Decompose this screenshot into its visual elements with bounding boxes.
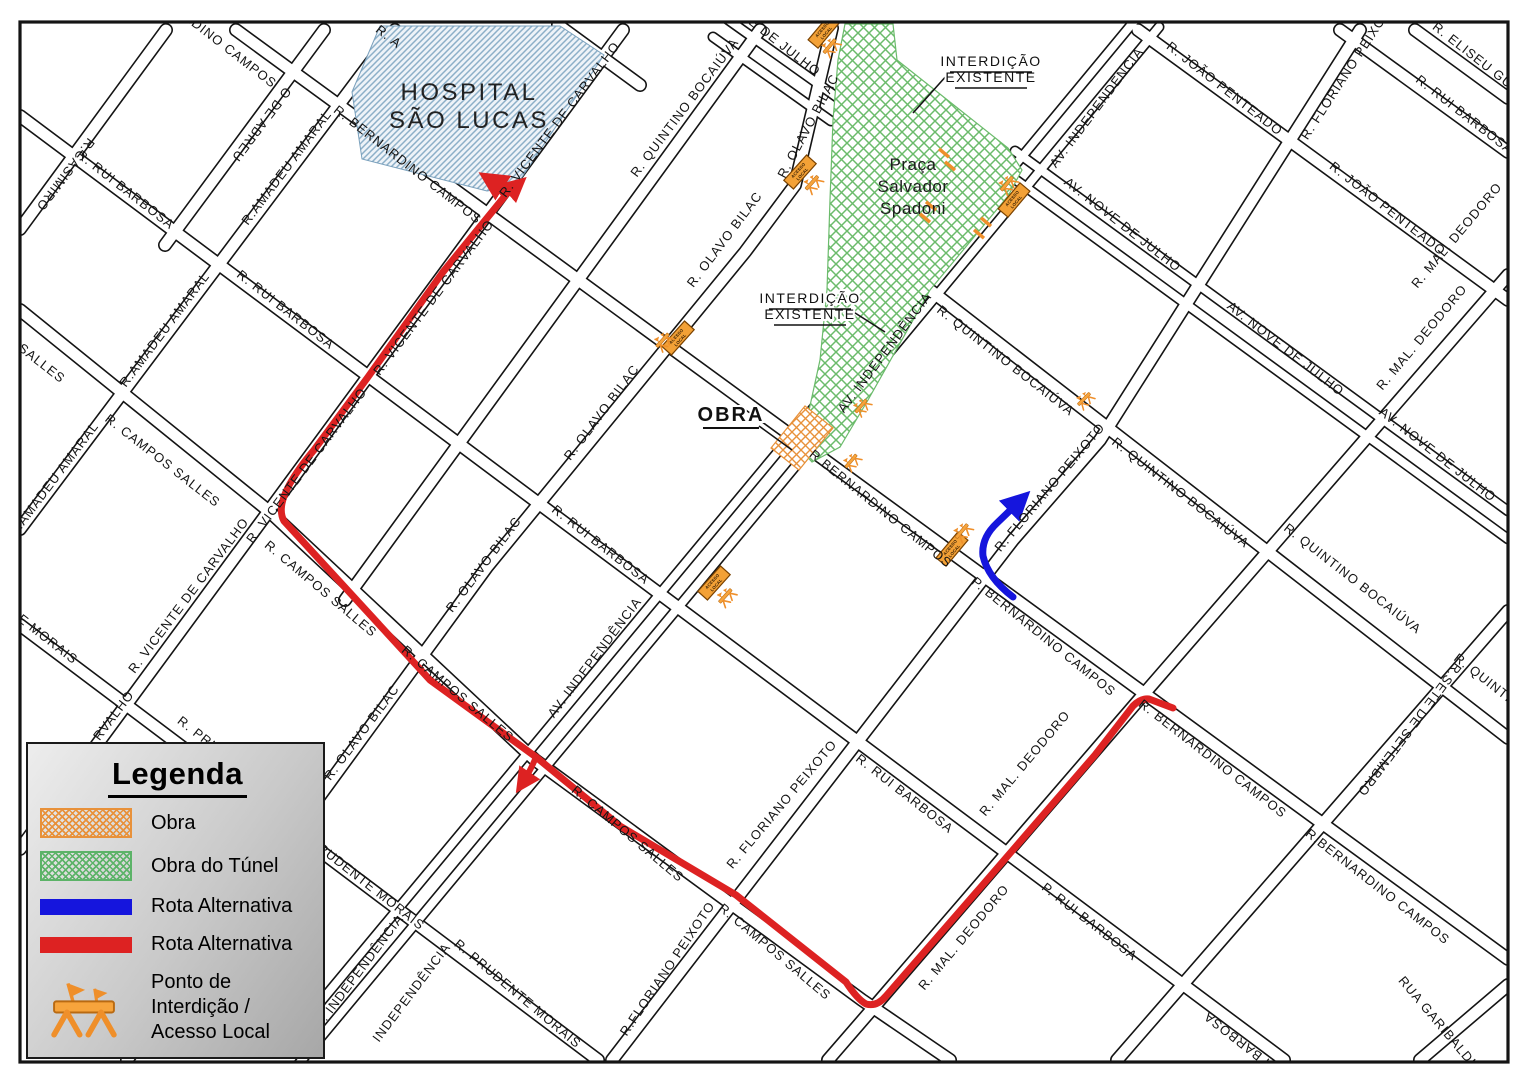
praca-name: Praça: [890, 155, 937, 174]
legend-title: Legenda: [108, 756, 247, 798]
legend-panel: Legenda Obra Obra do Túnel Rota Alternat…: [26, 742, 325, 1059]
legend-item-label: Rota Alternativa: [151, 932, 292, 957]
street-label: R. JOÃO PENTEADO: [1164, 38, 1286, 138]
legend-item-ponto-interdicao: Ponto de Interdição / Acesso Local: [40, 970, 309, 1045]
obra-callout: OBRA: [698, 404, 765, 426]
hospital-name: SÃO LUCAS: [389, 107, 549, 134]
red-route-swatch: [40, 937, 132, 953]
traffic-detour-map-page: ACESSO LOCAL R.CASIMIROO DE ABREUR.AMADE…: [0, 0, 1528, 1080]
legend-item-obra: Obra: [40, 808, 309, 838]
legend-item-label: Obra: [151, 811, 195, 836]
street-label: R. JOÃO PENTEADO: [1327, 158, 1449, 258]
street-label: R. RUI BARBOSA: [549, 502, 652, 587]
praca-name: Spadoni: [880, 199, 946, 218]
legend-item-label: Rota Alternativa: [151, 894, 292, 919]
street-label: R.BERNARDINO CAMPOS: [1303, 826, 1453, 948]
street-label: R. OLAVO BILAC: [443, 514, 525, 615]
street-label: R. CAMPOS SALLES: [569, 782, 687, 885]
praca-name: Salvador: [877, 177, 948, 196]
street-label: R.FLORIANO PEIXOTO: [617, 899, 718, 1039]
street-label: R. CAMPOS SALLES: [716, 900, 834, 1003]
street-label: R. VICENTE DE CARVALHO: [243, 385, 370, 546]
street-label: R. VICENTE DE CARVALHO: [125, 515, 252, 676]
street-label: P. BERNARDINO CAMPOS: [969, 574, 1119, 699]
barrier-legend-icon: [40, 976, 132, 1040]
street-label: R. BERNARDINO CAMPOS: [1136, 696, 1290, 821]
tunnel-hatch-swatch: [40, 851, 132, 881]
street-label: R. PRUDENTE MORAIS: [451, 936, 584, 1051]
street-label: R.AMADEU AMARAL: [116, 269, 212, 390]
street-label: R. QUINTINO BOCAIÚVA: [627, 35, 741, 180]
street-label: O DE ABREU: [229, 84, 295, 164]
interdicao-existente-callout: INTERDIÇÃO: [759, 290, 860, 306]
street-label: R. VICENTE DE CARVALHO: [370, 217, 497, 378]
legend-item-label: Obra do Túnel: [151, 854, 279, 879]
interdicao-existente-callout: INTERDIÇÃO: [940, 53, 1041, 69]
street-label: R. OLAVO BILAC: [321, 682, 403, 783]
street-label: R. RUI BARBOSA: [1201, 1009, 1304, 1080]
blue-route-swatch: [40, 899, 132, 915]
legend-item-label: Ponto de Interdição / Acesso Local: [151, 970, 309, 1045]
legend-item-rota-azul: Rota Alternativa: [40, 894, 309, 919]
obra-hatch-swatch: [40, 808, 132, 838]
hospital-name: HOSPITAL: [401, 79, 538, 106]
street-label: R.BERNARDINO CAMPOS: [807, 446, 955, 570]
street-label: R.SETE DE SETEMBRO: [1354, 660, 1464, 799]
street-label: R. QUINTINO BOCAIÚVA: [1109, 434, 1252, 550]
street-label: R. RUI BARBOSA: [74, 147, 177, 232]
street-label: R. QUINTINO BOCAIÚVA: [934, 302, 1077, 418]
legend-item-rota-vermelha: Rota Alternativa: [40, 932, 309, 957]
street-label: R. CAMPOS SALLES: [399, 642, 517, 745]
street-label: R. OLAVO BILAC: [561, 362, 643, 463]
street-label: P. RUI BARBOSA: [1039, 880, 1140, 964]
legend-item-obra-tunel: Obra do Túnel: [40, 851, 309, 881]
street-label: R. RUI BARBOSA: [234, 267, 337, 352]
street-label: R. RUI BARBOSA: [853, 751, 956, 836]
street-label: R. FLORIANO PEIXOTO: [991, 420, 1107, 555]
street-label: R. PRUDENTE MORAIS: [0, 556, 81, 667]
